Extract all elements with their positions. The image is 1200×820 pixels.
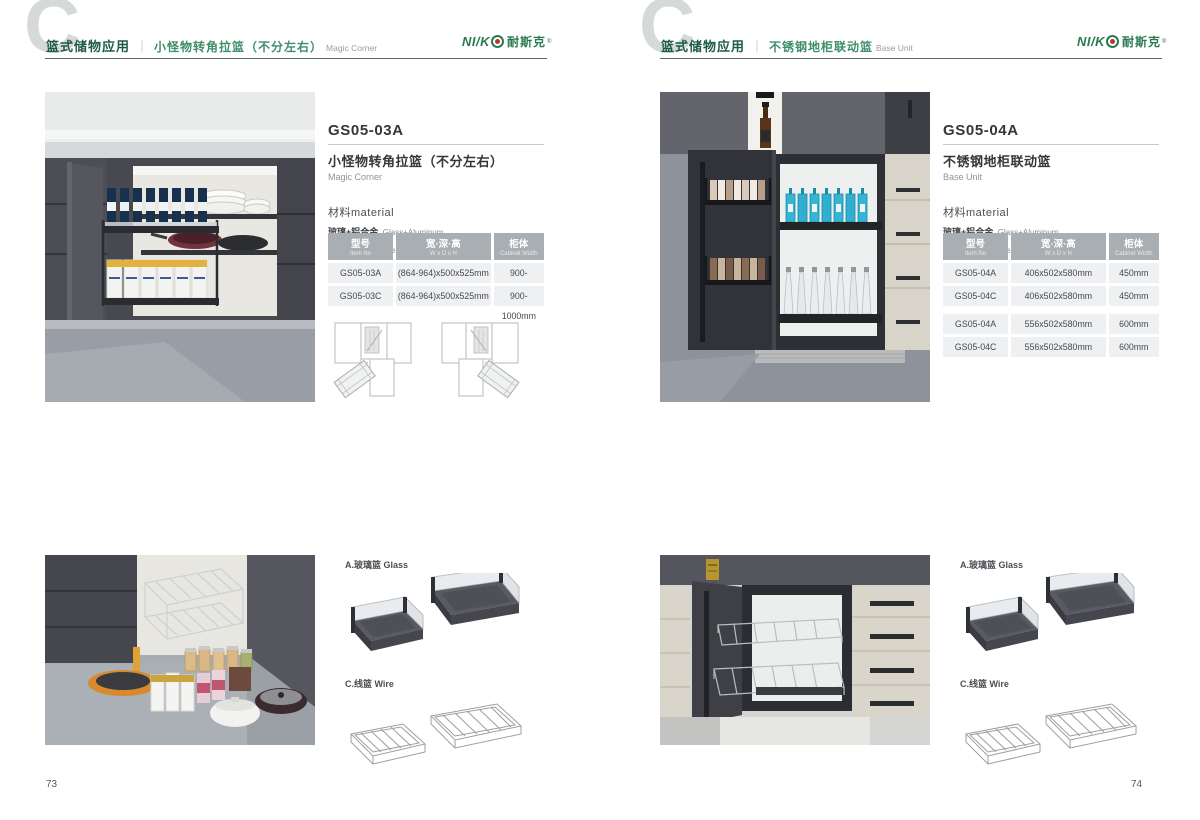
spec-row: GS05-03C (864-964)x500x525mm 900-1000mm	[328, 286, 544, 306]
wire-basket-label: C.线篮 Wire	[960, 677, 1145, 690]
header-category: 篮式储物应用	[661, 39, 745, 54]
registered-mark: ®	[547, 39, 551, 45]
spec-header-row: 型号 Item No 宽·深·高 W x D x H 柜体 Cabinet Wi…	[943, 233, 1159, 260]
spec-cell: 600mm	[1109, 337, 1159, 357]
spec-cell: GS05-04A	[943, 314, 1008, 334]
spec-row: GS05-04A 556x502x580mm 600mm	[943, 314, 1159, 334]
wire-basket-illustration	[345, 692, 525, 772]
spec-header-cell: 柜体 Cabinet Width	[1109, 233, 1159, 260]
corner-diagram-left-icon	[332, 318, 414, 398]
registered-mark: ®	[1162, 39, 1166, 45]
model-underline	[943, 144, 1159, 145]
header-divider: ｜	[751, 40, 763, 54]
header-subtitle-en: Magic Corner	[326, 43, 377, 53]
catalog-page-73: C 篮式储物应用｜小怪物转角拉篮（不分左右）Magic Corner NI/K耐…	[0, 0, 585, 820]
spec-header-cell: 宽·深·高 W x D x H	[396, 233, 491, 260]
brand-logo: NI/K耐斯克®	[1077, 33, 1166, 50]
brand-logo: NI/K耐斯克®	[462, 33, 551, 50]
header-category: 篮式储物应用	[46, 39, 130, 54]
product-name-cn: 小怪物转角拉篮（不分左右）	[328, 151, 544, 170]
open-door	[67, 162, 103, 346]
spec-cell: GS05-04A	[943, 263, 1008, 283]
product-name-en: Base Unit	[943, 172, 1159, 182]
spec-cell: 450mm	[1109, 286, 1159, 306]
material-heading: 材料material	[328, 204, 544, 220]
blue-bottles-shelf	[780, 188, 882, 230]
spec-header-cell: 型号 Item No	[943, 233, 1008, 260]
spec-header-cell: 柜体 Cabinet Width	[494, 233, 544, 260]
page-number: 73	[46, 779, 57, 790]
product-name-en: Magic Corner	[328, 172, 544, 182]
header-subtitle-en: Base Unit	[876, 43, 913, 53]
header-divider: ｜	[136, 40, 148, 54]
application-photo-graphic	[660, 555, 930, 745]
logo-o-icon	[491, 35, 504, 48]
glass-basket-label: A.玻璃篮 Glass	[345, 558, 530, 571]
base-unit-photo-graphic	[660, 92, 930, 402]
model-number: GS05-03A	[328, 122, 544, 139]
wire-basket-large	[1046, 704, 1136, 748]
accessory-block: A.玻璃篮 Glass	[345, 558, 530, 772]
spec-row: GS05-04A 406x502x580mm 450mm	[943, 263, 1159, 283]
catalog-spread: C 篮式储物应用｜小怪物转角拉篮（不分左右）Magic Corner NI/K耐…	[0, 0, 1200, 820]
logo-o-icon	[1106, 35, 1119, 48]
wire-basket-large	[431, 704, 521, 748]
accessory-block: A.玻璃篮 Glass	[960, 558, 1145, 772]
brand-logo-cn: 耐斯克	[1122, 33, 1161, 50]
open-door	[692, 581, 742, 725]
spec-header-row: 型号 Item No 宽·深·高 W x D x H 柜体 Cabinet Wi…	[328, 233, 544, 260]
wire-basket-small	[966, 724, 1040, 764]
door-basket-bottom	[706, 256, 770, 285]
spec-cell: 556x502x580mm	[1011, 337, 1106, 357]
product-photo-magic-corner	[45, 92, 315, 402]
application-photo-graphic	[45, 555, 315, 745]
catalog-page-74: C 篮式储物应用｜不锈钢地柜联动篮Base Unit NI/K耐斯克®	[615, 0, 1200, 820]
product-photo-base-unit	[660, 92, 930, 402]
spec-cell: 900-1000mm	[494, 286, 544, 306]
header-rule	[660, 58, 1162, 59]
door-basket-top	[706, 178, 770, 205]
page-number: 74	[1131, 779, 1142, 790]
spec-header-cell: 型号 Item No	[328, 233, 393, 260]
spec-table: 型号 Item No 宽·深·高 W x D x H 柜体 Cabinet Wi…	[943, 233, 1159, 360]
spec-cell: GS05-03A	[328, 263, 393, 283]
wire-basket-small	[351, 724, 425, 764]
page-header: 篮式储物应用｜不锈钢地柜联动篮Base Unit	[661, 36, 913, 56]
glass-basket-large	[1046, 573, 1134, 625]
glass-basket-small	[966, 597, 1038, 651]
spec-cell: GS05-04C	[943, 286, 1008, 306]
magic-corner-photo-graphic	[45, 92, 315, 402]
header-subtitle: 不锈钢地柜联动篮	[769, 40, 873, 54]
spec-cell: 406x502x580mm	[1011, 286, 1106, 306]
corner-config-diagrams	[332, 318, 521, 398]
spec-cell: 600mm	[1109, 314, 1159, 334]
brand-logo-latin: NI/K	[1077, 34, 1105, 49]
wire-basket-illustration	[960, 692, 1140, 772]
application-photo	[45, 555, 315, 745]
glass-basket-small	[351, 597, 423, 651]
glass-basket-large	[431, 573, 519, 625]
application-photo	[660, 555, 930, 745]
spec-row: GS05-04C 556x502x580mm 600mm	[943, 337, 1159, 357]
glass-basket-illustration	[345, 573, 525, 665]
spec-cell: GS05-03C	[328, 286, 393, 306]
spec-cell: (864-964)x500x525mm	[396, 286, 491, 306]
spec-header-cell: 宽·深·高 W x D x H	[1011, 233, 1106, 260]
spec-cell: 556x502x580mm	[1011, 314, 1106, 334]
spec-cell: GS05-04C	[943, 337, 1008, 357]
material-heading: 材料material	[943, 204, 1159, 220]
brand-logo-latin: NI/K	[462, 34, 490, 49]
spec-cell: 900-1000mm	[494, 263, 544, 283]
model-underline	[328, 144, 544, 145]
spec-cell: 450mm	[1109, 263, 1159, 283]
glass-basket-label: A.玻璃篮 Glass	[960, 558, 1145, 571]
glass-basket-illustration	[960, 573, 1140, 665]
page-header: 篮式储物应用｜小怪物转角拉篮（不分左右）Magic Corner	[46, 36, 377, 56]
spec-table: 型号 Item No 宽·深·高 W x D x H 柜体 Cabinet Wi…	[328, 233, 544, 309]
pullout-basket-bottom	[103, 260, 219, 305]
brand-logo-cn: 耐斯克	[507, 33, 546, 50]
header-subtitle: 小怪物转角拉篮（不分左右）	[154, 40, 323, 54]
spec-cell: (864-964)x500x525mm	[396, 263, 491, 283]
header-rule	[45, 58, 547, 59]
wire-basket-label: C.线篮 Wire	[345, 677, 530, 690]
product-name-cn: 不锈钢地柜联动篮	[943, 151, 1159, 170]
corner-diagram-right-icon	[439, 318, 521, 398]
spec-row: GS05-04C 406x502x580mm 450mm	[943, 286, 1159, 306]
spec-row: GS05-03A (864-964)x500x525mm 900-1000mm	[328, 263, 544, 283]
spec-cell: 406x502x580mm	[1011, 263, 1106, 283]
model-number: GS05-04A	[943, 122, 1159, 139]
